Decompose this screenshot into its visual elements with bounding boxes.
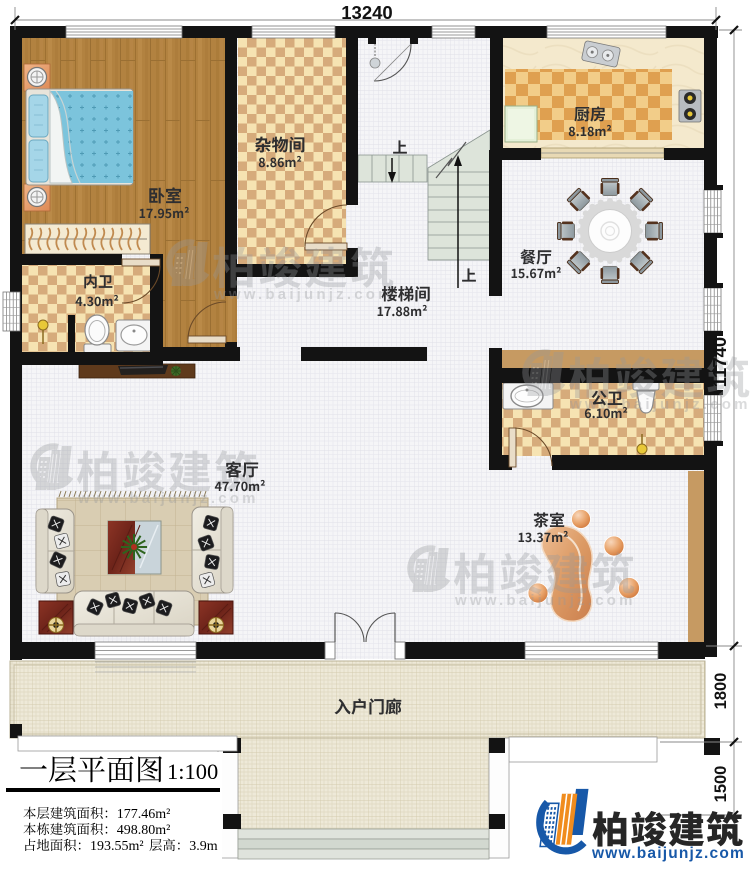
svg-text:www.baijunjz.com: www.baijunjz.com: [569, 396, 750, 413]
svg-text:13240: 13240: [341, 2, 392, 23]
svg-text:177.46m²: 177.46m²: [117, 807, 171, 822]
svg-text:1:100: 1:100: [167, 759, 218, 784]
svg-text:193.55m²: 193.55m²: [90, 839, 144, 854]
svg-text:www.baijunjz.com: www.baijunjz.com: [454, 592, 636, 609]
svg-text:11740: 11740: [709, 337, 730, 387]
svg-text:www.baijunjz.com: www.baijunjz.com: [591, 845, 745, 862]
svg-text:3.9m: 3.9m: [189, 839, 218, 854]
svg-text:498.80m²: 498.80m²: [117, 823, 171, 838]
svg-text:1500: 1500: [712, 766, 730, 803]
svg-text:www.baijunjz.com: www.baijunjz.com: [77, 490, 259, 507]
svg-text:www.baijunjz.com: www.baijunjz.com: [213, 286, 395, 303]
svg-text:1800: 1800: [712, 673, 730, 710]
